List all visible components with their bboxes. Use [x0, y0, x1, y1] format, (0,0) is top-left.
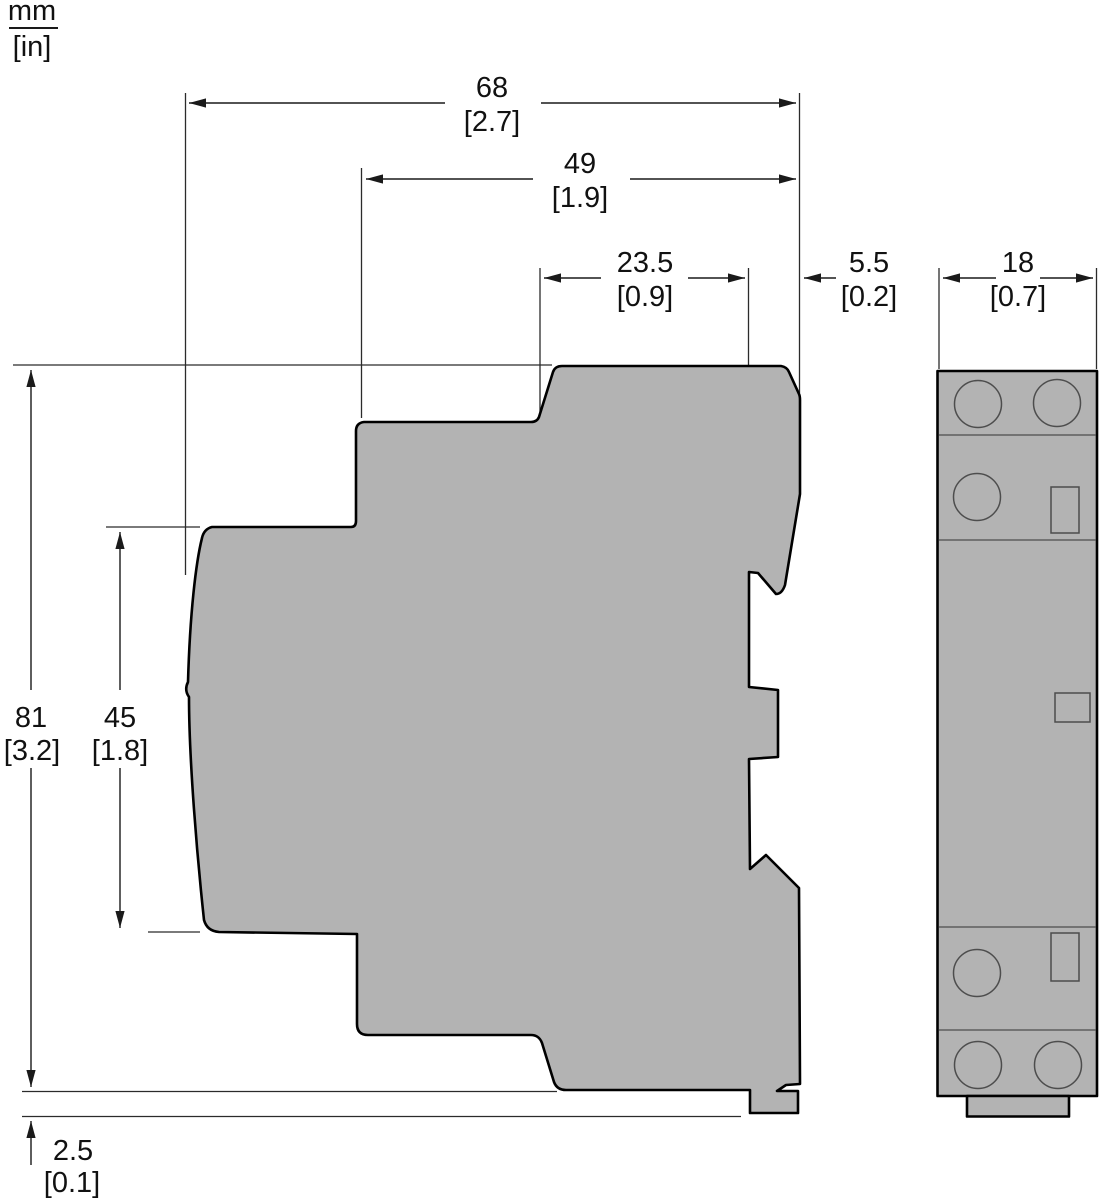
dimension-value-in: [0.1]: [44, 1167, 100, 1199]
dimension-value-mm: 81: [15, 702, 47, 734]
dimension-value-in: [3.2]: [4, 735, 60, 767]
dimension-value-in: [2.7]: [464, 106, 520, 138]
dimension-value-in: [0.9]: [617, 281, 673, 313]
unit-legend-mm: mm: [8, 0, 56, 27]
side-view: [186, 366, 800, 1113]
front-view: [938, 371, 1098, 1117]
dimension-value-mm: 45: [104, 702, 136, 734]
dimension-value-mm: 68: [476, 72, 508, 104]
dimension-overall-height: 81 [3.2]: [4, 370, 60, 1087]
dimension-drawing-page: mm [in]: [0, 0, 1103, 1200]
dimension-value-in: [0.7]: [990, 281, 1046, 313]
dimension-front-height: 45 [1.8]: [92, 532, 148, 928]
dimension-value-mm: 23.5: [617, 247, 673, 279]
unit-legend-in: [in]: [13, 31, 52, 63]
dimension-body-depth: 49 [1.9]: [366, 148, 796, 214]
dimension-rear-offset: 5.5 [0.2]: [804, 247, 897, 313]
dimension-value-in: [0.2]: [841, 281, 897, 313]
dimension-value-mm: 2.5: [53, 1135, 93, 1167]
dimension-overall-depth: 68 [2.7]: [189, 72, 796, 138]
dimension-value-in: [1.8]: [92, 735, 148, 767]
dimension-module-width: 18 [0.7]: [943, 247, 1093, 313]
dimension-value-mm: 18: [1002, 247, 1034, 279]
front-view-foot: [967, 1096, 1069, 1117]
dimension-value-in: [1.9]: [552, 182, 608, 214]
dimension-value-mm: 5.5: [849, 247, 889, 279]
side-profile: [186, 366, 800, 1113]
technical-drawing: mm [in]: [0, 0, 1103, 1200]
dimension-foot-height: 2.5 [0.1]: [31, 1121, 100, 1199]
dimension-value-mm: 49: [564, 148, 596, 180]
dimension-front-depth: 23.5 [0.9]: [544, 247, 745, 313]
unit-legend: mm [in]: [8, 0, 58, 63]
